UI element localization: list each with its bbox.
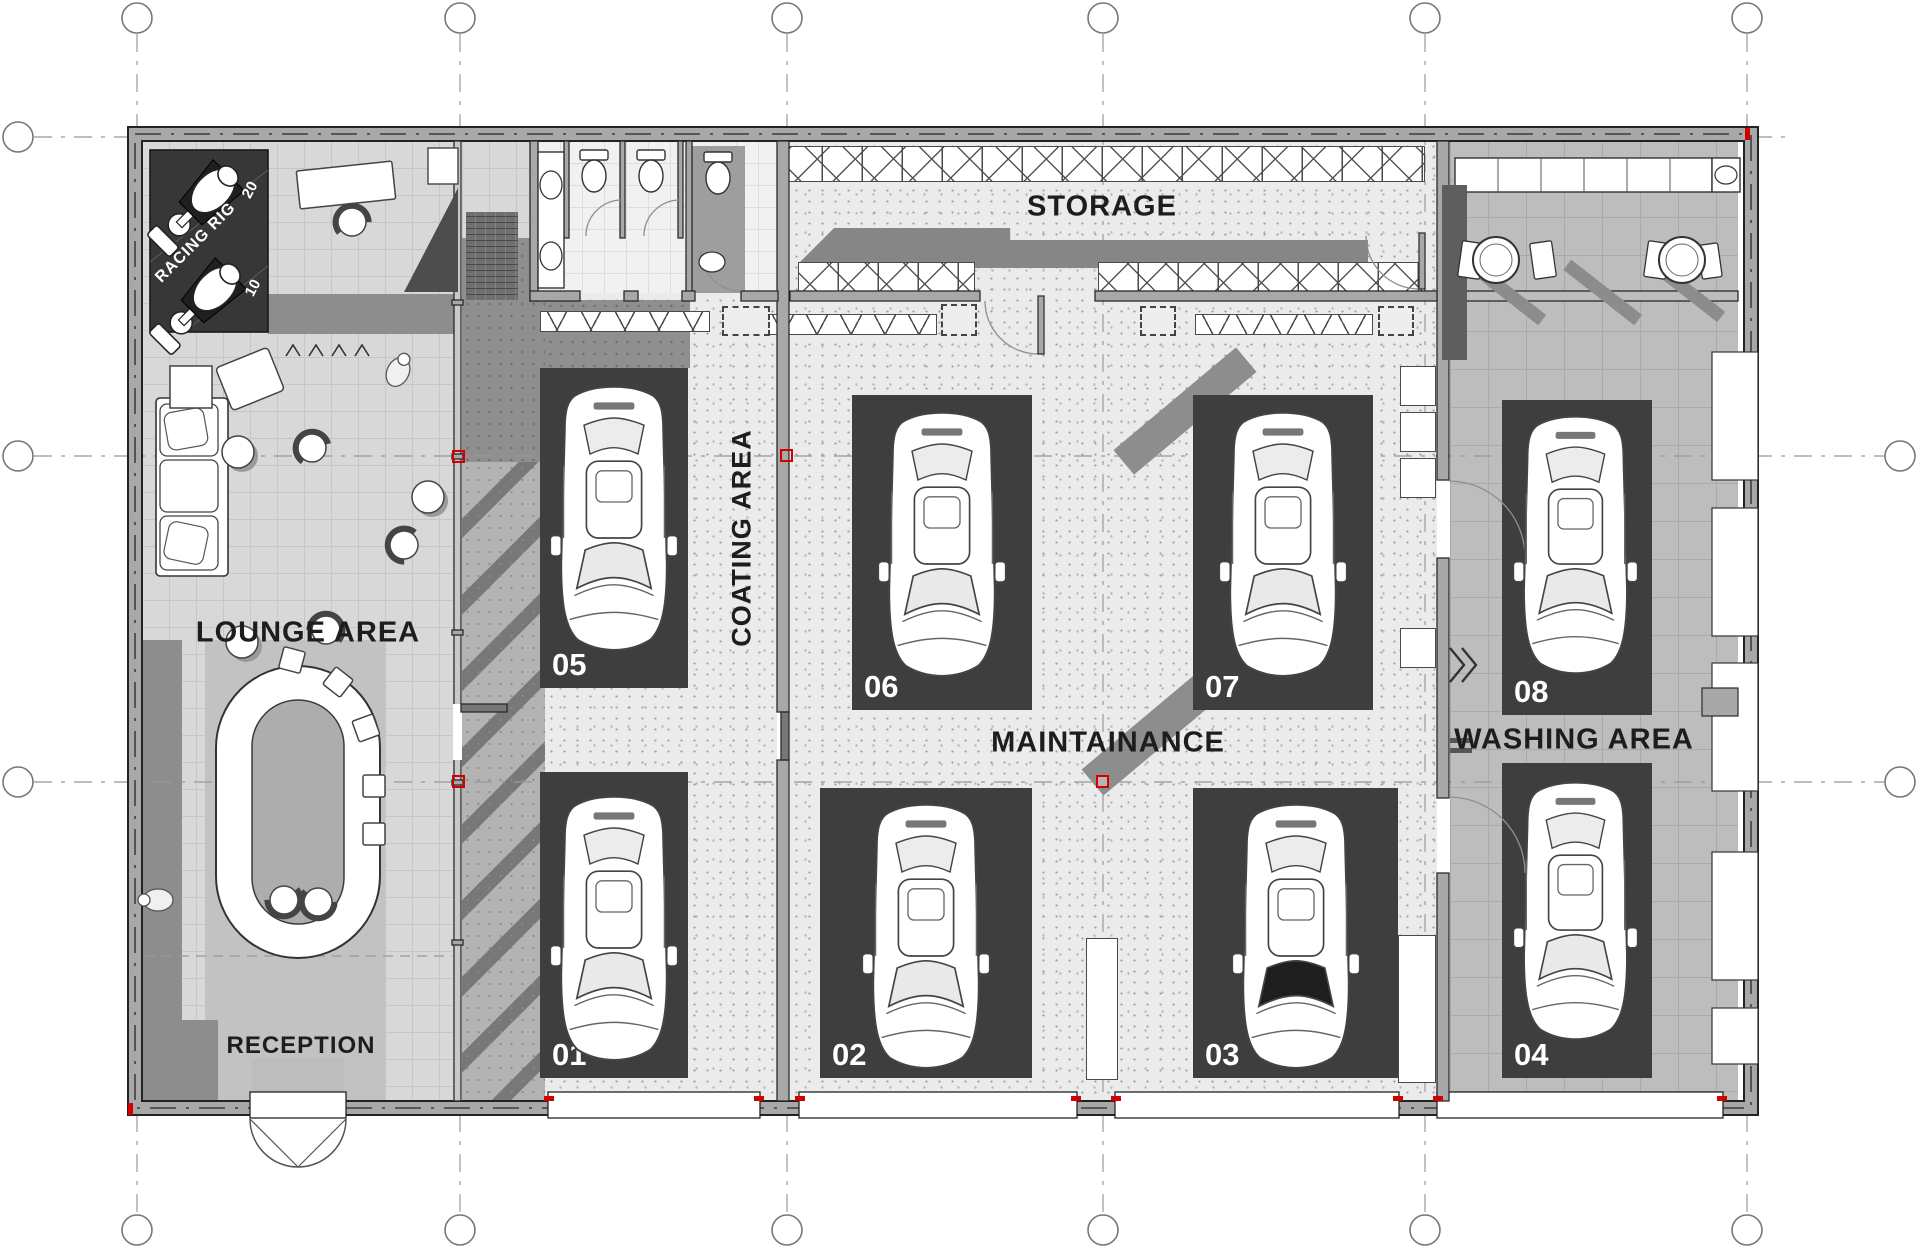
entrance-door [250,1119,346,1167]
maintenance-label: MAINTAINANCE [991,729,1225,758]
grid-marker [1096,775,1109,788]
car-05 [550,387,677,650]
lounge-label: LOUNGE AREA [196,619,420,648]
washing-label: WASHING AREA [1454,726,1694,755]
hose-reel [1644,237,1723,283]
person-figure [138,889,173,911]
car-06 [878,413,1005,676]
side-table [170,366,212,408]
jamb-mark [1111,1096,1121,1101]
pouf [412,481,448,517]
jamb-mark [1717,1096,1727,1101]
jamb-mark [1433,1096,1443,1101]
coating-label: COATING AREA [729,429,756,647]
car-02 [862,805,989,1068]
floor-plan: 05 01 06 02 07 03 08 04 [0,0,1920,1248]
car-07 [1219,413,1346,676]
jamb-mark [1071,1096,1081,1101]
car-03 [1232,805,1359,1068]
jamb-mark [754,1096,764,1101]
car-04 [1513,783,1637,1040]
detailing-room [1442,158,1740,360]
jamb-mark [544,1096,554,1101]
jamb-mark [795,1096,805,1101]
jamb-mark [1393,1096,1403,1101]
corner-mark [128,1103,133,1115]
storage-label: STORAGE [1027,193,1177,222]
locker-hangers [286,345,369,356]
office-corner [286,148,458,356]
reception-desk [216,647,385,958]
grid-marker [452,775,465,788]
corner-mark [1745,128,1750,140]
grid-marker [452,450,465,463]
grid-marker [780,449,793,462]
car-01 [550,797,677,1060]
person-figure [382,349,417,390]
hose-reel [1458,237,1557,283]
car-08 [1513,417,1637,674]
sofa [156,398,228,576]
reception-label: RECEPTION [226,1034,375,1058]
